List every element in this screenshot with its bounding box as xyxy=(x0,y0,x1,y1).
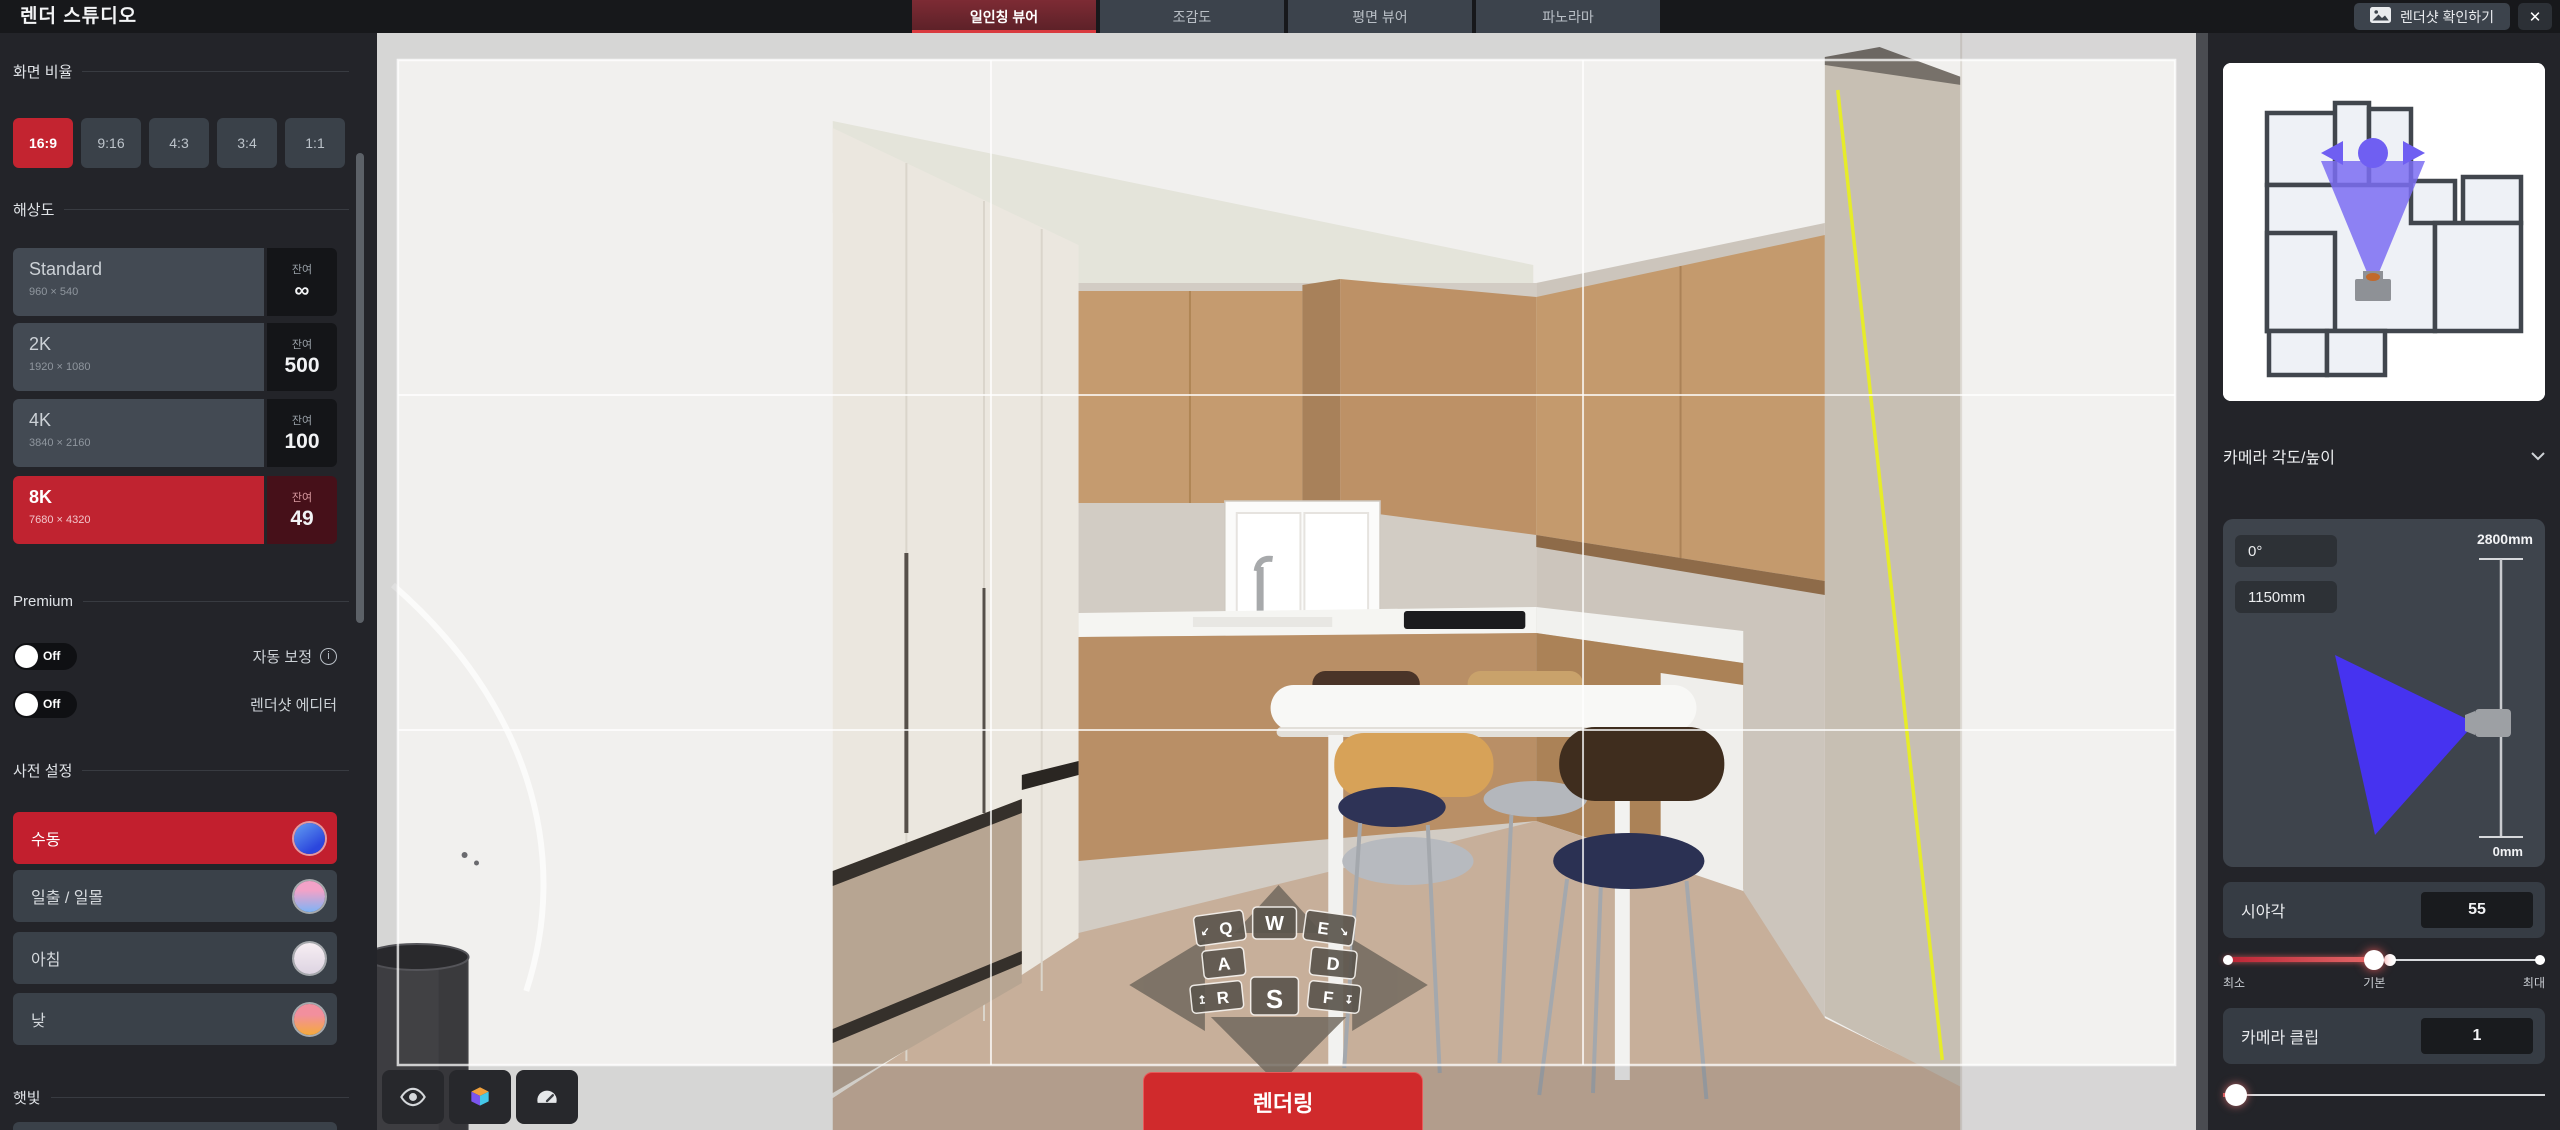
preset-section-title: 사전 설정 xyxy=(13,760,349,781)
remaining-label: 잔여 xyxy=(292,489,312,505)
preset-manual[interactable]: 수동 xyxy=(13,812,337,864)
close-icon: ✕ xyxy=(2529,8,2542,26)
premium-section-title: Premium xyxy=(13,593,349,610)
fov-min-label: 최소 xyxy=(2223,974,2245,991)
camera-angle-height-panel[interactable]: 0° 1150mm 2800mm 0mm xyxy=(2223,519,2545,867)
aspect-3-4-button[interactable]: 3:4 xyxy=(217,118,277,168)
tab-birds-eye-view[interactable]: 조감도 xyxy=(1100,0,1284,33)
preset-swatch xyxy=(294,881,325,912)
minimap-floor-plan xyxy=(2223,63,2545,401)
check-rendershot-label: 렌더샷 확인하기 xyxy=(2400,7,2494,27)
viewport-toolbar xyxy=(382,1070,578,1124)
render-studio-app: 렌더 스튜디오 일인칭 뷰어 조감도 평면 뷰어 파노라마 렌더샷 확인하기 ✕… xyxy=(0,0,2560,1130)
sunlight-section-title: 햇빛 xyxy=(13,1087,349,1108)
aspect-16-9-button[interactable]: 16:9 xyxy=(13,118,73,168)
render-settings-panel: 화면 비율 16:9 9:16 4:3 3:4 1:1 해상도 Standard… xyxy=(0,33,377,1130)
height-max-label: 2800mm xyxy=(2477,531,2533,547)
rendershot-editor-label: 렌더샷 에디터 xyxy=(250,694,337,715)
render-viewport-3d[interactable]: Q W E A D R S F ↙ ↘ ↥ ↧ xyxy=(377,33,2196,1130)
floor-plan-minimap[interactable] xyxy=(2223,63,2545,401)
app-title: 렌더 스튜디오 xyxy=(20,0,137,33)
tab-panorama[interactable]: 파노라마 xyxy=(1476,0,1660,33)
materials-tool-button[interactable] xyxy=(449,1070,511,1124)
remaining-count: 500 xyxy=(284,354,319,378)
performance-tool-button[interactable] xyxy=(516,1070,578,1124)
svg-text:R: R xyxy=(1216,988,1230,1008)
svg-text:S: S xyxy=(1266,986,1283,1014)
fov-default-dot xyxy=(2384,954,2396,966)
right-wall xyxy=(1825,33,2196,1130)
height-min-label: 0mm xyxy=(2493,844,2523,859)
sidebar-scrollbar[interactable] xyxy=(356,153,364,623)
aspect-1-1-button[interactable]: 1:1 xyxy=(285,118,345,168)
rendershot-editor-toggle[interactable]: Off xyxy=(13,691,77,718)
svg-text:W: W xyxy=(1265,913,1284,935)
fov-slider-handle[interactable] xyxy=(2364,950,2384,970)
close-button[interactable]: ✕ xyxy=(2518,3,2552,30)
preset-morning[interactable]: 아침 xyxy=(13,932,337,984)
camera-settings-panel: 카메라 각도/높이 0° 1150mm 2800mm 0mm 시야각 5 xyxy=(2208,33,2560,1130)
chevron-down-icon xyxy=(2531,452,2545,461)
remaining-count: ∞ xyxy=(295,279,310,303)
eye-icon xyxy=(399,1083,427,1111)
rendershot-editor-row: Off 렌더샷 에디터 xyxy=(13,689,337,719)
visibility-tool-button[interactable] xyxy=(382,1070,444,1124)
resolution-size: 7680 × 4320 xyxy=(29,514,264,526)
tab-plan-viewer[interactable]: 평면 뷰어 xyxy=(1288,0,1472,33)
color-cube-icon xyxy=(467,1084,493,1110)
svg-text:↧: ↧ xyxy=(1344,994,1354,1007)
preset-swatch xyxy=(294,943,325,974)
image-icon xyxy=(2370,7,2391,26)
auto-correction-label: 자동 보정 xyxy=(253,646,312,667)
svg-text:D: D xyxy=(1326,953,1341,974)
fov-slider[interactable]: 최소 기본 최대 xyxy=(2223,948,2545,992)
aspect-9-16-button[interactable]: 9:16 xyxy=(81,118,141,168)
left-wardrobe-cabinets xyxy=(833,128,1079,1098)
sunlight-control-partial xyxy=(13,1122,337,1130)
preset-swatch xyxy=(294,1004,325,1035)
camera-angle-field[interactable]: 0° xyxy=(2235,535,2337,567)
auto-correction-row: Off 자동 보정 i xyxy=(13,641,337,671)
viewport-scrollbar[interactable] xyxy=(2196,33,2208,1130)
resolution-4k-row[interactable]: 4K 3840 × 2160 잔여 100 xyxy=(13,399,337,467)
resolution-name: 8K xyxy=(29,487,264,508)
camera-height-handle[interactable] xyxy=(2465,709,2511,737)
svg-text:F: F xyxy=(1322,988,1334,1008)
fov-min-dot xyxy=(2223,955,2233,965)
camera-height-visualizer xyxy=(2223,519,2545,867)
remaining-label: 잔여 xyxy=(292,412,312,428)
aspect-ratio-options: 16:9 9:16 4:3 3:4 1:1 xyxy=(13,118,345,168)
svg-text:Q: Q xyxy=(1218,918,1234,939)
camera-clip-row: 카메라 클립 1 xyxy=(2223,1008,2545,1064)
camera-angle-height-header[interactable]: 카메라 각도/높이 xyxy=(2223,441,2545,471)
render-button[interactable]: 렌더링 xyxy=(1143,1072,1423,1130)
preset-sunrise-sunset[interactable]: 일출 / 일몰 xyxy=(13,870,337,922)
check-rendershot-button[interactable]: 렌더샷 확인하기 xyxy=(2354,3,2510,30)
remaining-count: 49 xyxy=(290,507,313,531)
remaining-label: 잔여 xyxy=(292,336,312,352)
svg-text:↙: ↙ xyxy=(1200,925,1211,938)
resolution-name: Standard xyxy=(29,259,264,280)
top-right-actions: 렌더샷 확인하기 ✕ xyxy=(2354,3,2552,30)
resolution-name: 4K xyxy=(29,410,264,431)
remaining-count: 100 xyxy=(284,430,319,454)
top-bar: 렌더 스튜디오 일인칭 뷰어 조감도 평면 뷰어 파노라마 렌더샷 확인하기 ✕ xyxy=(0,0,2560,33)
resolution-8k-row[interactable]: 8K 7680 × 4320 잔여 49 xyxy=(13,476,337,544)
toggle-knob xyxy=(15,645,38,668)
info-icon[interactable]: i xyxy=(320,648,337,665)
fov-default-label: 기본 xyxy=(2363,974,2385,991)
resolution-section-title: 해상도 xyxy=(13,199,349,220)
camera-clip-slider[interactable] xyxy=(2223,1080,2545,1114)
auto-correction-toggle[interactable]: Off xyxy=(13,643,77,670)
view-mode-tabs: 일인칭 뷰어 조감도 평면 뷰어 파노라마 xyxy=(912,0,1660,33)
toggle-knob xyxy=(15,693,38,716)
svg-text:↘: ↘ xyxy=(1338,925,1349,938)
camera-clip-slider-handle[interactable] xyxy=(2225,1084,2247,1106)
resolution-size: 1920 × 1080 xyxy=(29,361,264,373)
svg-text:↥: ↥ xyxy=(1197,994,1207,1007)
fov-max-label: 최대 xyxy=(2523,974,2545,991)
gauge-icon xyxy=(533,1083,561,1111)
fov-value-field[interactable]: 55 xyxy=(2421,892,2533,928)
aspect-4-3-button[interactable]: 4:3 xyxy=(149,118,209,168)
resolution-2k-row[interactable]: 2K 1920 × 1080 잔여 500 xyxy=(13,323,337,391)
camera-height-field[interactable]: 1150mm xyxy=(2235,581,2337,613)
camera-clip-value-field[interactable]: 1 xyxy=(2421,1018,2533,1054)
tab-first-person-viewer[interactable]: 일인칭 뷰어 xyxy=(912,0,1096,33)
resolution-name: 2K xyxy=(29,334,264,355)
preset-swatch xyxy=(294,823,325,854)
remaining-label: 잔여 xyxy=(292,261,312,277)
resolution-size: 960 × 540 xyxy=(29,286,264,298)
resolution-size: 3840 × 2160 xyxy=(29,437,264,449)
fov-label: 시야각 xyxy=(2241,898,2285,922)
fov-max-dot xyxy=(2535,955,2545,965)
render-scene: Q W E A D R S F ↙ ↘ ↥ ↧ xyxy=(377,33,2196,1130)
preset-day[interactable]: 낮 xyxy=(13,993,337,1045)
aspect-ratio-section-title: 화면 비율 xyxy=(13,61,349,82)
camera-clip-label: 카메라 클립 xyxy=(2241,1024,2319,1048)
fov-row: 시야각 55 xyxy=(2223,882,2545,938)
svg-text:A: A xyxy=(1216,953,1231,974)
resolution-standard-row[interactable]: Standard 960 × 540 잔여 ∞ xyxy=(13,248,337,316)
